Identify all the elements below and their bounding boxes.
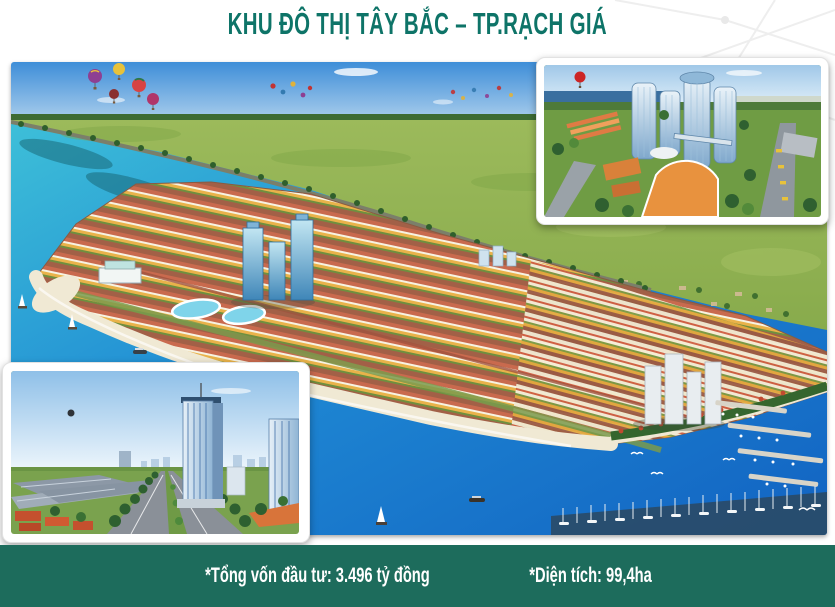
towers-closeup-svg — [544, 65, 821, 217]
slide: KHU ĐÔ THỊ TÂY BẮC – TP.RẠCH GIÁ — [0, 0, 835, 607]
inset-bl-sky — [11, 371, 299, 471]
area-stat: *Diện tích: 99,4ha — [530, 564, 653, 588]
inset-towers-closeup — [536, 57, 829, 225]
page-title: KHU ĐÔ THỊ TÂY BẮC – TP.RẠCH GIÁ — [0, 6, 835, 42]
page-title-text: KHU ĐÔ THỊ TÂY BẮC – TP.RẠCH GIÁ — [228, 6, 607, 42]
shore-complex — [99, 261, 141, 283]
inset-boulevard-street — [2, 362, 310, 543]
footer-stats-bar: *Tổng vốn đầu tư: 3.496 tỷ đồng *Diện tí… — [0, 545, 835, 607]
inset-bl-glass-tower — [177, 383, 225, 508]
boulevard-street-svg — [11, 371, 299, 534]
investment-stat: *Tổng vốn đầu tư: 3.496 tỷ đồng — [205, 564, 430, 588]
inset-bl-balloon — [68, 410, 75, 417]
